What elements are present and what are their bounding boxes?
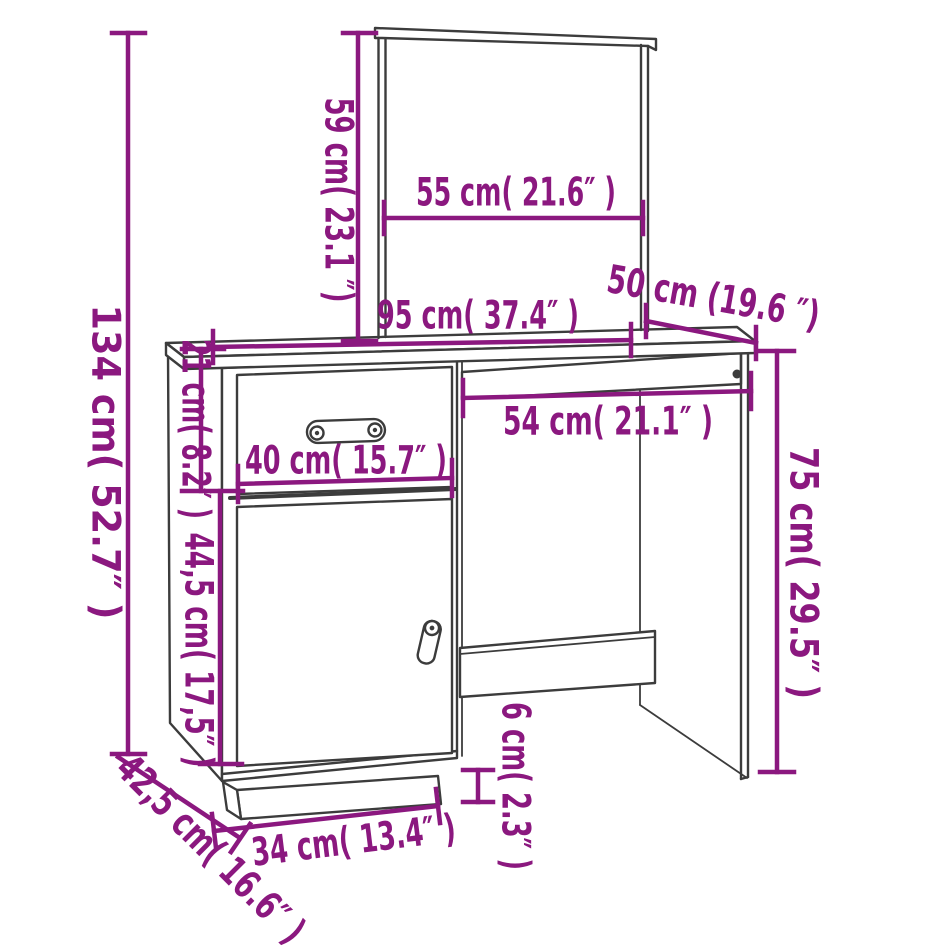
dim-label-desk-height: 75 cm( 29.5″ ) [781,447,826,699]
dim-label-mirror-height: 59 cm( 23.1 ″) [316,98,361,303]
plinth-side [223,782,241,819]
dim-label-desk-width: 95 cm( 37.4″ ) [377,294,579,339]
dimension-diagram: 134 cm( 52.7″ ) 59 cm( 23.1 ″) 55 cm( 21… [0,0,947,947]
beam-front [460,631,655,697]
dimension-diagram-page: 134 cm( 52.7″ ) 59 cm( 23.1 ″) 55 cm( 21… [0,0,947,947]
dim-label-mirror-width: 55 cm( 21.6″ ) [416,171,616,216]
dim-label-drawer-height: 21 cm( 8.2″ ) [173,339,218,519]
dim-label-door-height: 44,5 cm( 17,5″ ) [176,533,221,768]
stretcher-beam [460,631,655,697]
dim-label-plinth-height: 6 cm( 2.3″ ) [493,702,538,870]
dim-plinth-height-6 [463,770,493,802]
cabinet-door [237,499,452,766]
dim-label-cabinet-width: 40 cm( 15.7″ ) [245,439,447,484]
dim-label-total-height: 134 cm( 52.7″ ) [83,305,128,620]
mirror-top-rail [375,28,656,50]
dim-label-knee-width: 54 cm( 21.1″ ) [503,400,713,445]
panel-bottom-edge [640,705,747,778]
door-front [237,499,452,766]
